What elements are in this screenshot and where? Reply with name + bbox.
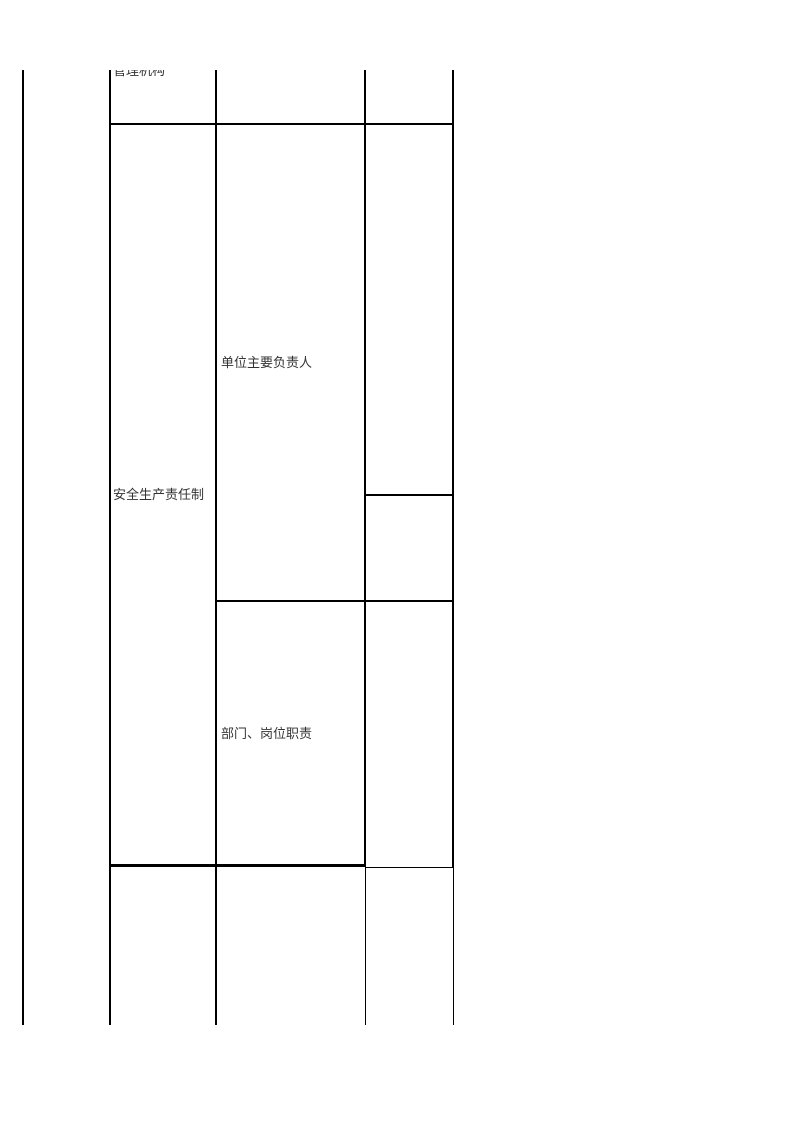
department-position-duties-label: 部门、岗位职责: [221, 726, 312, 741]
document-page: 管理机构 安全生产责任制 单位主要负责人 部门、岗位职责: [0, 0, 793, 1122]
cell-col3-bottom-empty[interactable]: [366, 868, 453, 1025]
table-border-row3-left-segment: [109, 864, 366, 867]
management-organization-label: 管理机构: [113, 70, 165, 78]
cell-col3-row3-empty[interactable]: [366, 602, 452, 864]
unit-main-person-in-charge-label: 单位主要负责人: [221, 355, 312, 370]
table-border-right-lower: [453, 867, 454, 1025]
cell-safety-production-responsibility[interactable]: 安全生产责任制: [111, 125, 215, 864]
cell-unit-main-person-in-charge[interactable]: 单位主要负责人: [217, 125, 364, 600]
cell-col2-bottom-empty[interactable]: [217, 868, 364, 1025]
table-border-right-upper: [452, 70, 454, 867]
cell-left-column-empty[interactable]: [24, 70, 109, 1025]
cell-col2-top-empty[interactable]: [217, 70, 364, 123]
cell-management-organization[interactable]: 管理机构: [111, 70, 215, 123]
cell-col3-top-empty[interactable]: [366, 70, 452, 123]
cell-department-position-duties[interactable]: 部门、岗位职责: [217, 602, 364, 864]
safety-production-responsibility-label: 安全生产责任制: [113, 487, 204, 502]
cell-col3-row1-empty[interactable]: [366, 125, 452, 494]
cell-col3-row2-empty[interactable]: [366, 496, 452, 600]
cell-col1-bottom-empty[interactable]: [111, 868, 215, 1025]
